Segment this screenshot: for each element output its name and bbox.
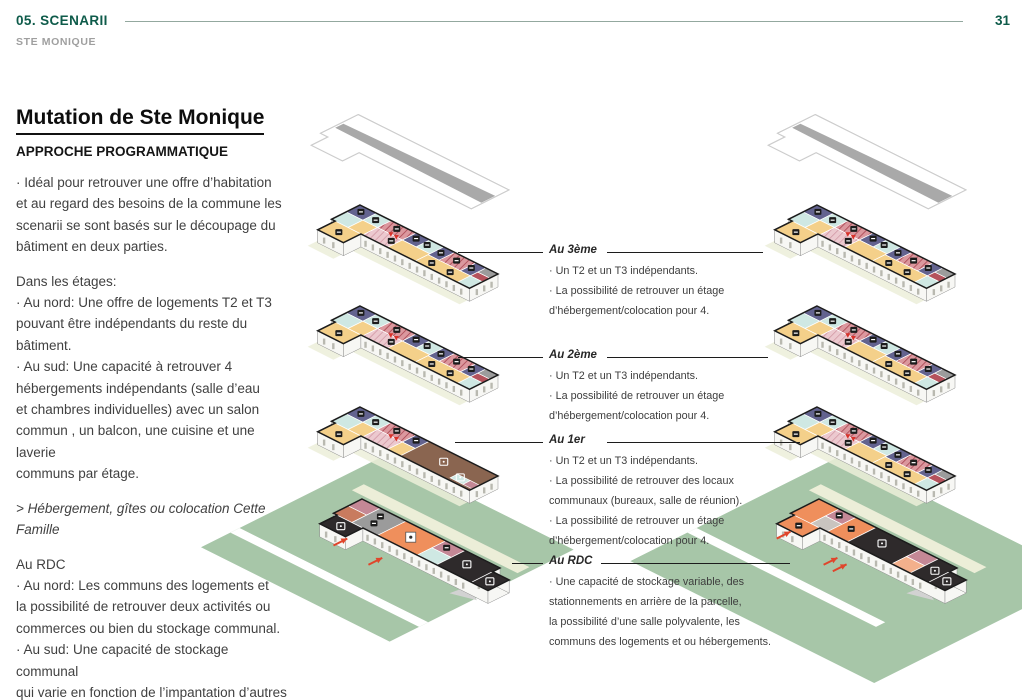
bullet-line: communs des logements et ou hébergements… (549, 632, 784, 652)
floor-label: Au 2ème (549, 349, 597, 361)
leader-line-left (512, 563, 543, 564)
bullet-line: · Un T2 et un T3 indépendants. (549, 366, 784, 386)
bullet-line: · La possibilité de retrouver un étage (549, 386, 784, 406)
bullet-line: d’hébergement/colocation pour 4. (549, 301, 784, 321)
bullet-line: · La possibilité de retrouver des locaux (549, 471, 784, 491)
leader-line-left (458, 357, 543, 358)
bullet-line: · La possibilité de retrouver un étage (549, 281, 784, 301)
bullet-line: d’hébergement/colocation pour 4. (549, 406, 784, 426)
floor-bullets: · Un T2 et un T3 indépendants.· La possi… (549, 451, 784, 551)
bullet-line: la possibilité d’une salle polyvalente, … (549, 612, 784, 632)
leader-line-right (607, 357, 768, 358)
leader-line-left (455, 442, 543, 443)
bullet-line: · Un T2 et un T3 indépendants. (549, 261, 784, 281)
bullet-line: · Un T2 et un T3 indépendants. (549, 451, 784, 471)
bullet-line: · Une capacité de stockage variable, des (549, 572, 784, 592)
leader-line-right (607, 252, 763, 253)
leader-line-left (458, 252, 543, 253)
floor-bullets: · Un T2 et un T3 indépendants.· La possi… (549, 261, 784, 321)
bullet-line: communaux (bureaux, salle de réunion). (549, 491, 784, 511)
floor-bullets: · Une capacité de stockage variable, des… (549, 572, 784, 652)
bullet-line: d’hébergement/colocation pour 4. (549, 531, 784, 551)
floor-label: Au 1er (549, 434, 585, 446)
leader-line-right (607, 442, 800, 443)
floor-label: Au RDC (549, 555, 592, 567)
floor-annotations: Au 3ème· Un T2 et un T3 indépendants.· L… (0, 0, 1022, 700)
document-page: 05. SCENARII 31 STE MONIQUE Mutation de … (0, 0, 1022, 700)
floor-label: Au 3ème (549, 244, 597, 256)
bullet-line: · La possibilité de retrouver un étage (549, 511, 784, 531)
floor-bullets: · Un T2 et un T3 indépendants.· La possi… (549, 366, 784, 426)
bullet-line: stationnements en arrière de la parcelle… (549, 592, 784, 612)
leader-line-right (601, 563, 790, 564)
